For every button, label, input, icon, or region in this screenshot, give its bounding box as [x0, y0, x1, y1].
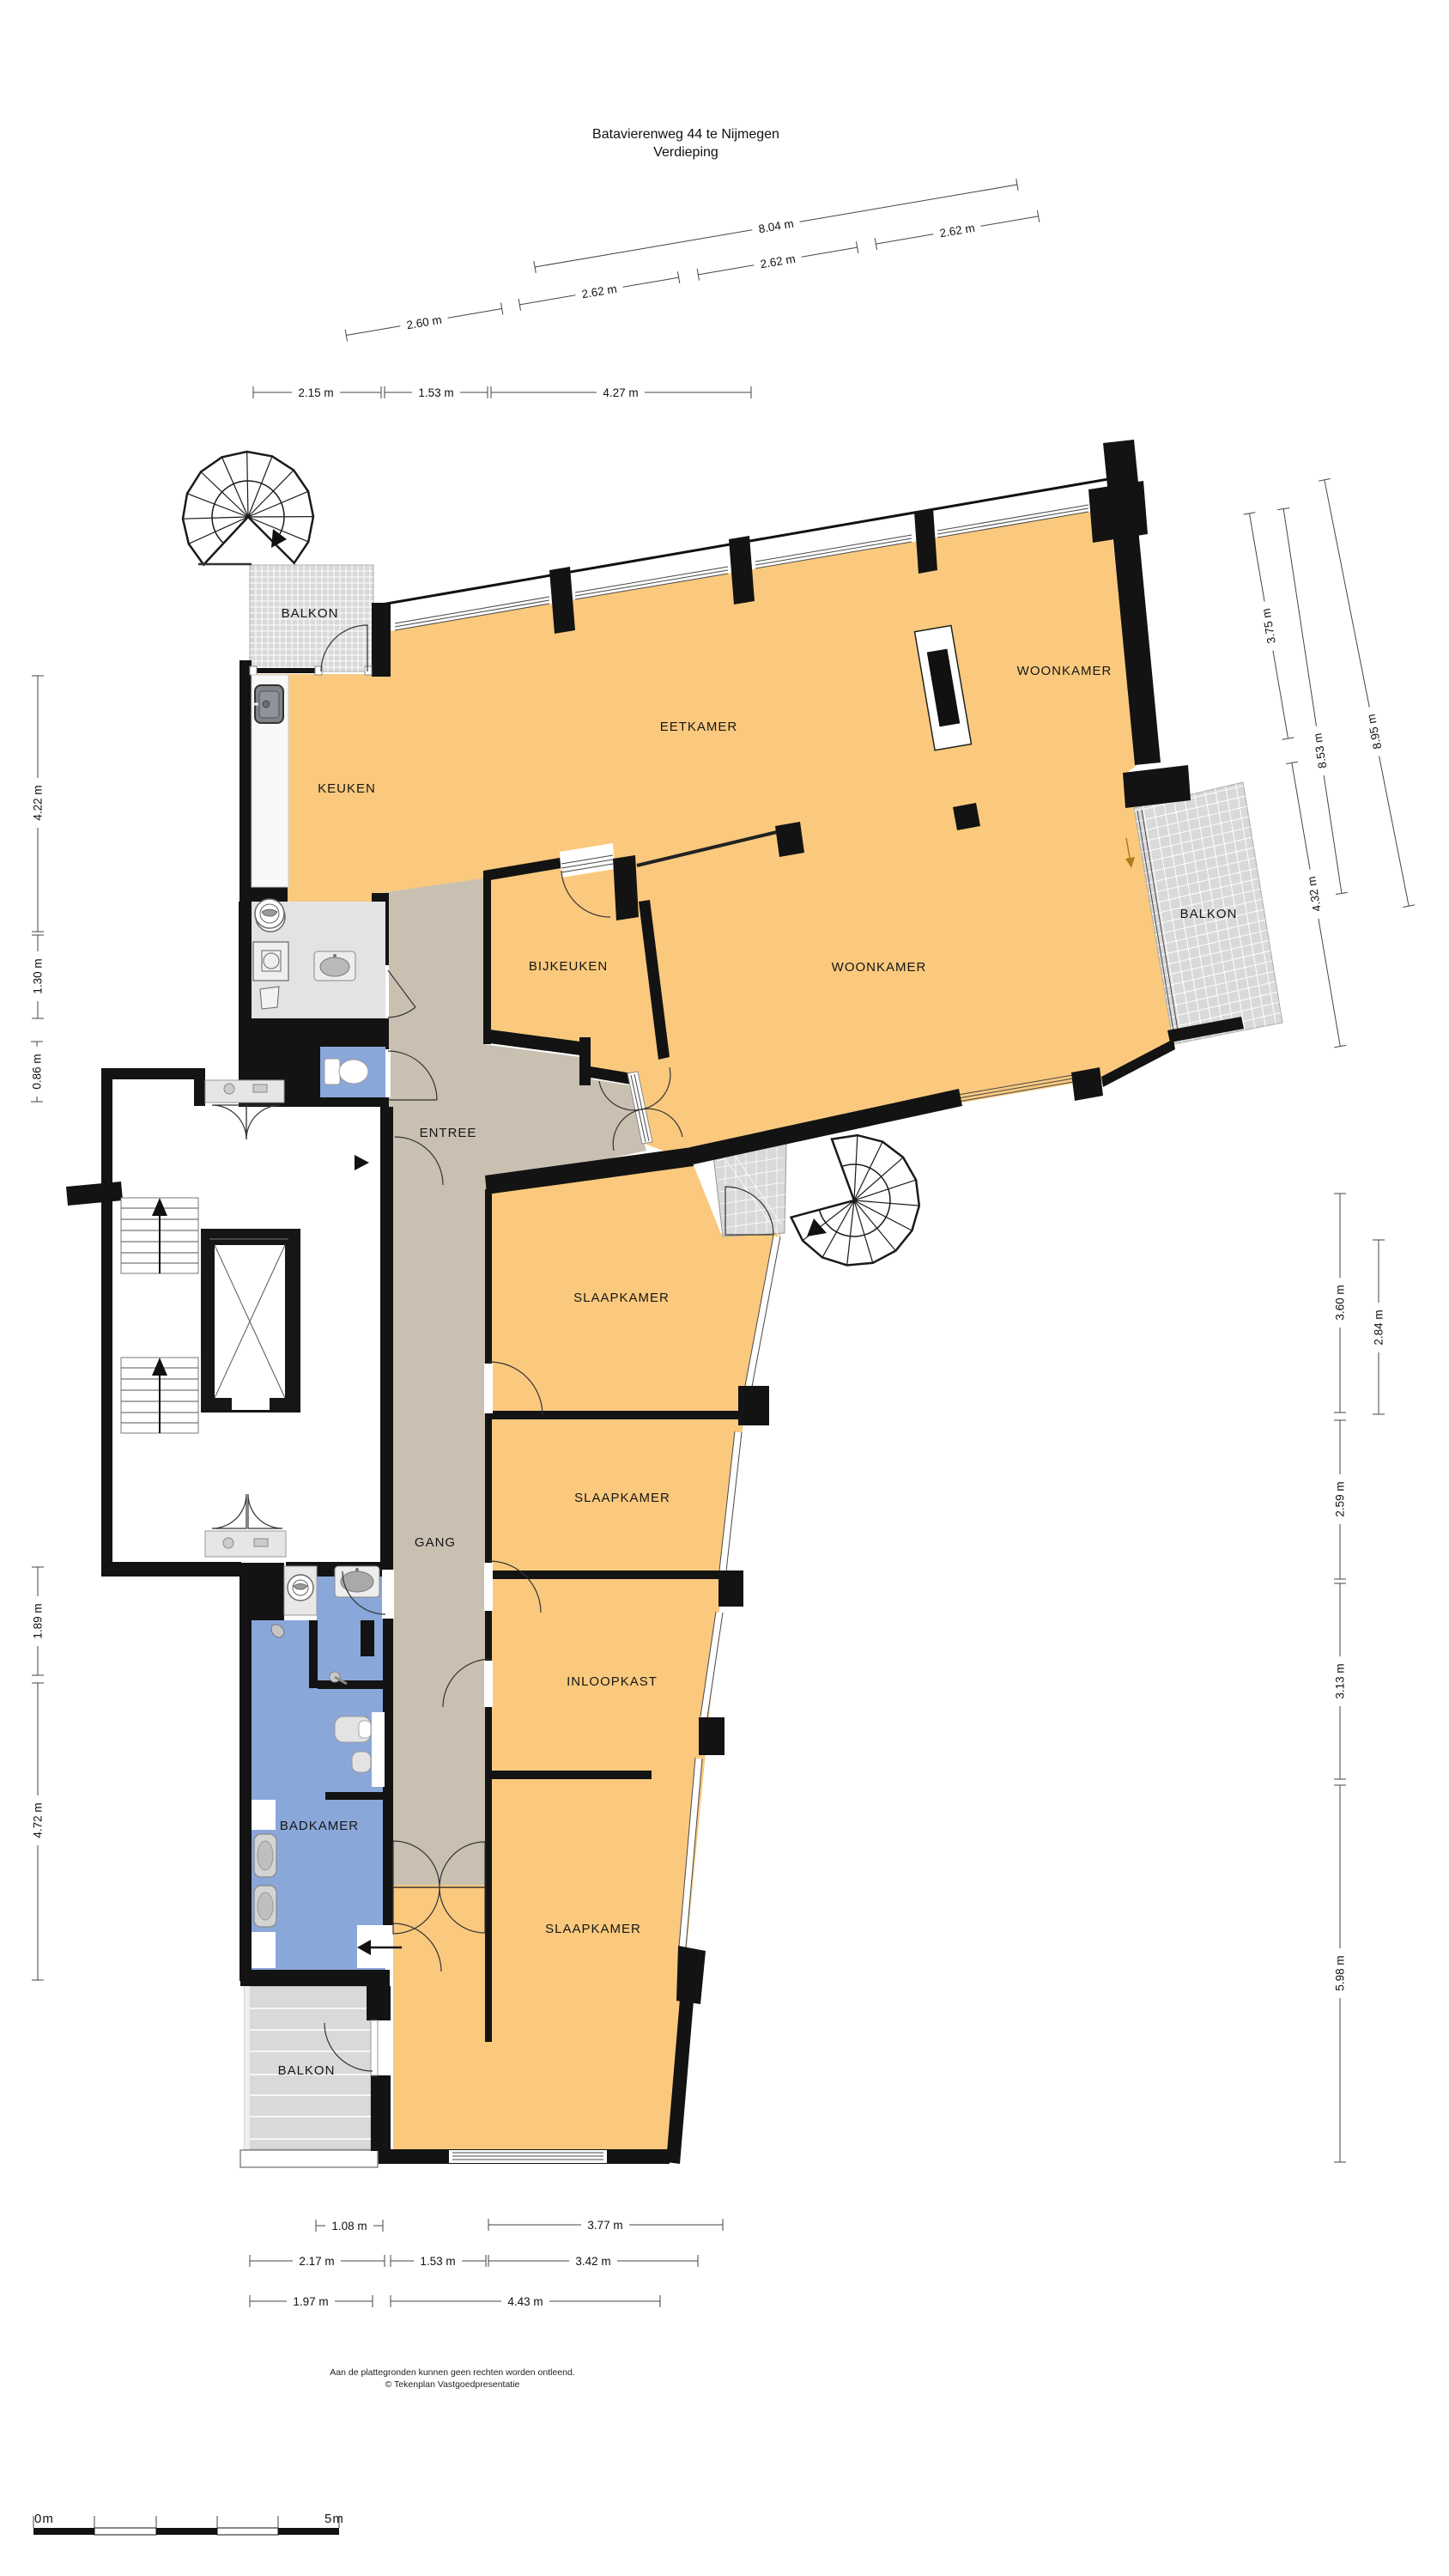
svg-text:3.42 m: 3.42 m: [575, 2255, 610, 2268]
svg-text:BIJKEUKEN: BIJKEUKEN: [529, 959, 608, 974]
svg-text:1.97 m: 1.97 m: [293, 2295, 328, 2308]
svg-text:2.59 m: 2.59 m: [1334, 1481, 1347, 1516]
svg-text:1.89 m: 1.89 m: [32, 1603, 45, 1638]
svg-text:4.43 m: 4.43 m: [507, 2295, 543, 2308]
svg-text:BADKAMER: BADKAMER: [280, 1819, 359, 1833]
svg-text:Verdieping: Verdieping: [653, 145, 718, 160]
svg-text:INLOOPKAST: INLOOPKAST: [567, 1674, 658, 1689]
svg-text:4.27 m: 4.27 m: [603, 386, 638, 399]
svg-text:SLAAPKAMER: SLAAPKAMER: [574, 1491, 670, 1505]
svg-text:2.15 m: 2.15 m: [298, 386, 333, 399]
svg-text:WOONKAMER: WOONKAMER: [832, 960, 927, 975]
svg-text:WOONKAMER: WOONKAMER: [1017, 664, 1113, 678]
svg-text:Aan de plattegronden kunnen ge: Aan de plattegronden kunnen geen rechten…: [330, 2367, 574, 2378]
svg-text:SLAAPKAMER: SLAAPKAMER: [545, 1922, 641, 1936]
svg-text:3.13 m: 3.13 m: [1334, 1663, 1347, 1698]
svg-text:5m: 5m: [324, 2512, 344, 2526]
svg-text:Batavierenweg 44 te Nijmegen: Batavierenweg 44 te Nijmegen: [592, 127, 779, 142]
svg-text:BALKON: BALKON: [282, 606, 339, 621]
svg-text:1.30 m: 1.30 m: [32, 958, 45, 993]
svg-text:1.08 m: 1.08 m: [331, 2220, 367, 2233]
svg-text:SLAAPKAMER: SLAAPKAMER: [573, 1291, 670, 1305]
svg-text:BALKON: BALKON: [1180, 907, 1238, 921]
svg-text:2.84 m: 2.84 m: [1373, 1309, 1385, 1345]
svg-text:0m: 0m: [34, 2512, 54, 2526]
svg-text:4.72 m: 4.72 m: [32, 1802, 45, 1838]
svg-text:EETKAMER: EETKAMER: [660, 720, 738, 734]
svg-text:KEUKEN: KEUKEN: [318, 781, 376, 796]
svg-text:ENTREE: ENTREE: [420, 1126, 477, 1140]
svg-text:© Tekenplan Vastgoedpresentati: © Tekenplan Vastgoedpresentatie: [385, 2379, 520, 2390]
svg-text:2.17 m: 2.17 m: [299, 2255, 334, 2268]
svg-text:1.53 m: 1.53 m: [418, 386, 453, 399]
svg-text:3.60 m: 3.60 m: [1334, 1285, 1347, 1320]
svg-text:4.22 m: 4.22 m: [32, 785, 45, 820]
svg-text:3.77 m: 3.77 m: [587, 2219, 622, 2232]
svg-text:1.53 m: 1.53 m: [420, 2255, 455, 2268]
svg-text:BALKON: BALKON: [278, 2063, 336, 2078]
svg-text:GANG: GANG: [415, 1535, 456, 1550]
svg-text:0.86 m: 0.86 m: [31, 1054, 44, 1089]
svg-text:5.98 m: 5.98 m: [1334, 1955, 1347, 1990]
